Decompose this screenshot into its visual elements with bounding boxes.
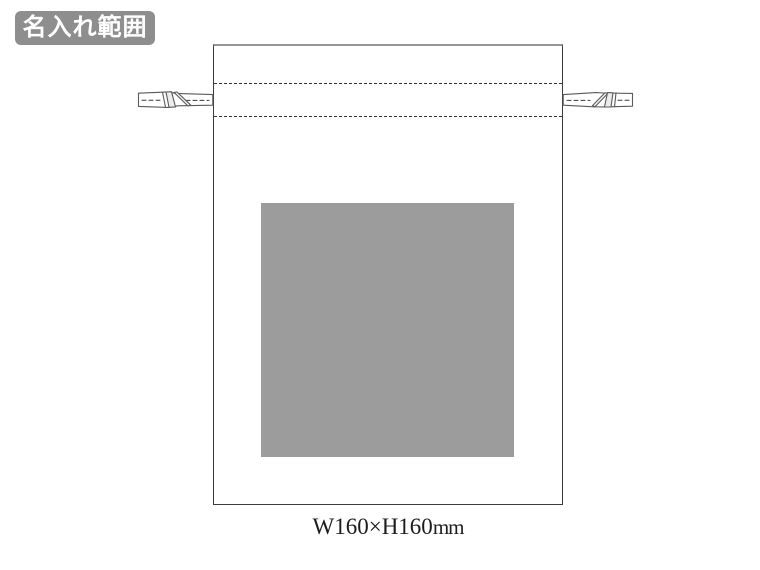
drawstring-cord-right-icon xyxy=(563,93,632,107)
print-area-diagram-canvas: 名入れ範囲 W160×H160mm xyxy=(0,0,760,570)
size-caption: W160×H160mm xyxy=(213,513,563,541)
print-area-rect xyxy=(261,203,514,457)
size-caption-unit: mm xyxy=(433,515,464,539)
print-area-badge-label: 名入れ範囲 xyxy=(23,16,148,40)
channel-stitch-line-bottom xyxy=(214,116,562,117)
drawstring-cord-left-icon xyxy=(139,92,213,108)
channel-stitch-line-top xyxy=(214,83,562,84)
size-caption-dimensions: W160×H160 xyxy=(313,514,433,539)
print-area-badge: 名入れ範囲 xyxy=(15,11,155,45)
